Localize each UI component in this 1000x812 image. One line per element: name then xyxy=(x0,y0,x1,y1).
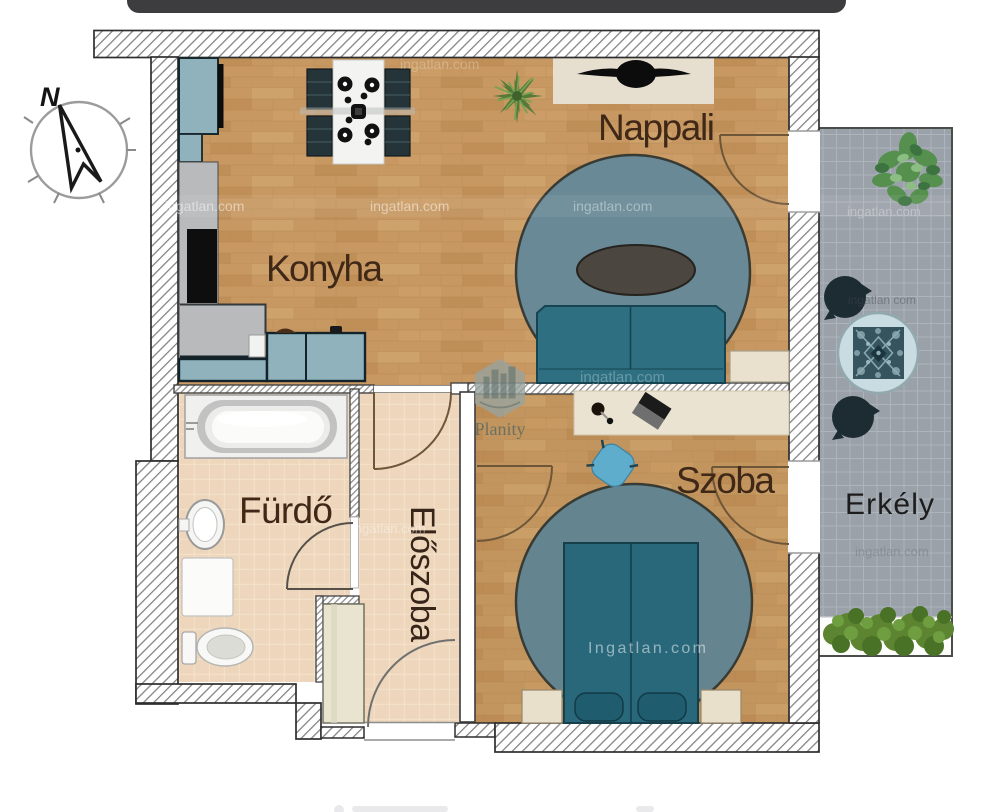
svg-text:N: N xyxy=(40,82,60,112)
svg-text:Nappali: Nappali xyxy=(598,107,715,148)
svg-text:ingatlan.com: ingatlan.com xyxy=(580,369,665,386)
svg-text:ingatlan.com: ingatlan.com xyxy=(352,521,426,536)
svg-text:Planity: Planity xyxy=(474,419,525,439)
svg-text:ingatlan com: ingatlan com xyxy=(848,293,916,307)
svg-text:ingatlan.com: ingatlan.com xyxy=(370,198,449,214)
svg-text:ingatlan.com: ingatlan.com xyxy=(573,198,652,214)
svg-text:Szoba: Szoba xyxy=(676,460,775,501)
svg-text:ingatlan.com: ingatlan.com xyxy=(400,56,479,72)
svg-text:Fürdő: Fürdő xyxy=(239,490,333,531)
svg-text:ingatlan.com: ingatlan.com xyxy=(165,198,244,214)
svg-text:ingatlan.com: ingatlan.com xyxy=(855,544,929,559)
svg-text:Ingatlan.com: Ingatlan.com xyxy=(588,640,706,657)
svg-text:ingatlan.com: ingatlan.com xyxy=(847,204,921,219)
svg-text:Konyha: Konyha xyxy=(266,248,383,289)
svg-text:Erkély: Erkély xyxy=(845,488,934,521)
